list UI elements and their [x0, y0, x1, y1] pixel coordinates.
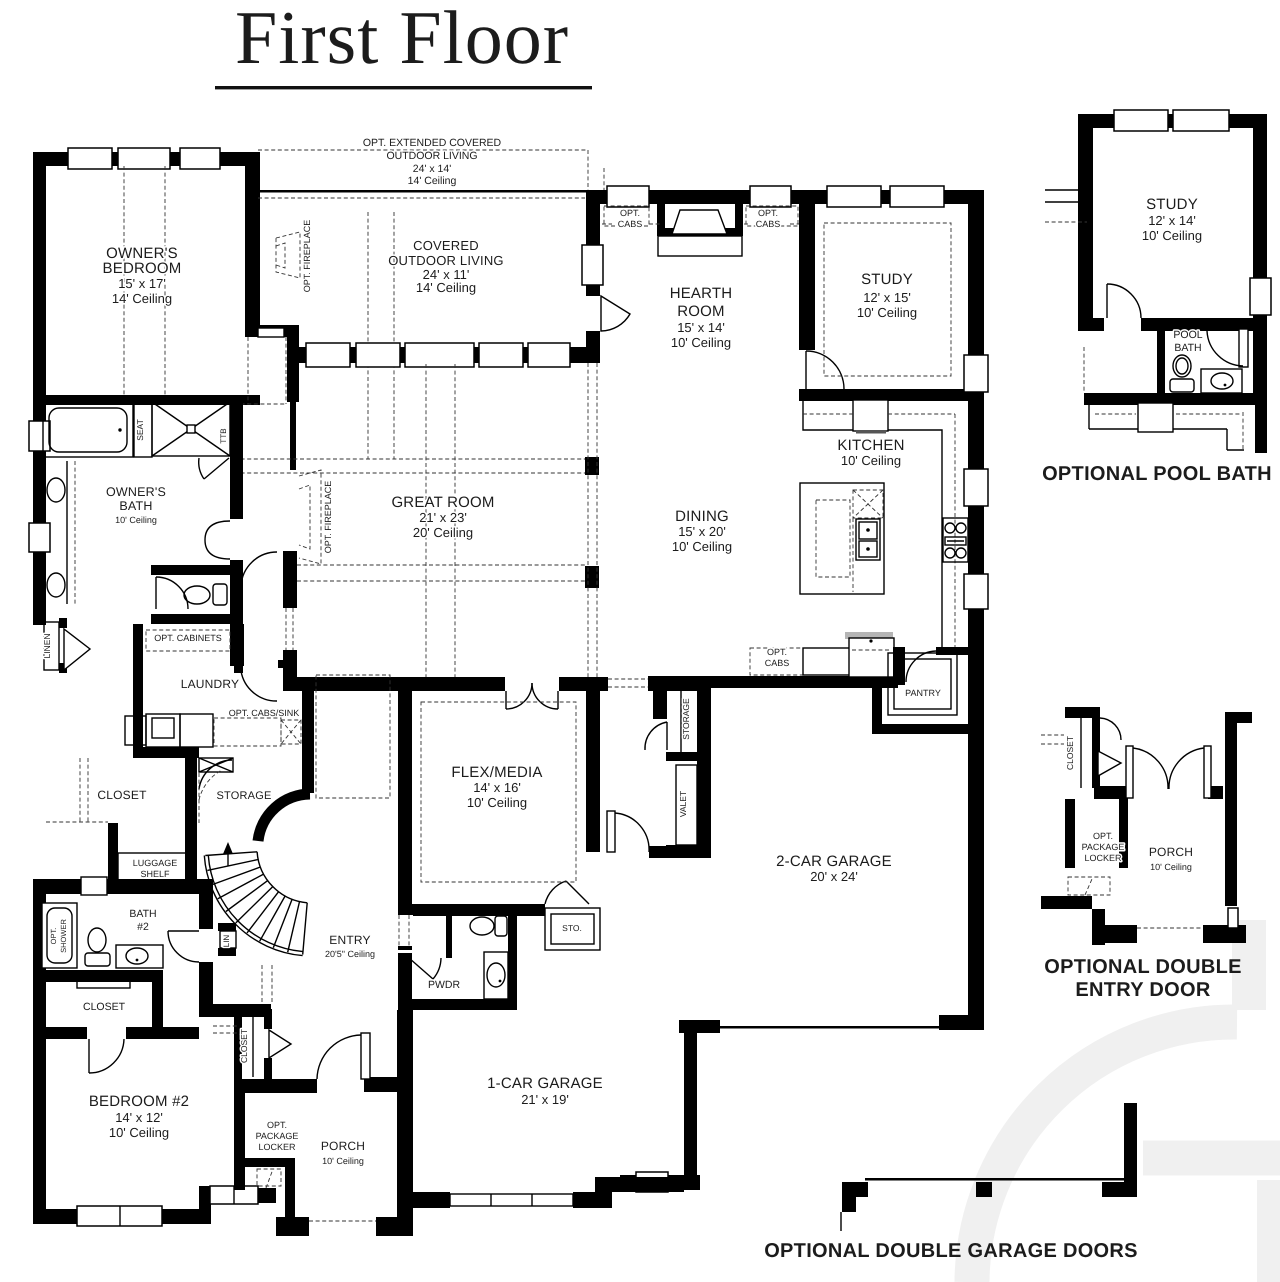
svg-text:OUTDOOR LIVING: OUTDOOR LIVING: [386, 150, 477, 162]
svg-text:OPT.: OPT.: [620, 208, 640, 218]
svg-text:DINING: DINING: [675, 508, 729, 525]
svg-text:STORAGE: STORAGE: [217, 790, 272, 802]
svg-text:BEDROOM #2: BEDROOM #2: [89, 1093, 189, 1110]
svg-text:OPT. EXTENDED COVERED: OPT. EXTENDED COVERED: [363, 137, 502, 149]
svg-text:CABS: CABS: [618, 219, 643, 229]
svg-text:CLOSET: CLOSET: [83, 1001, 126, 1013]
svg-text:LINEN: LINEN: [42, 633, 52, 658]
svg-text:SEAT: SEAT: [135, 419, 145, 441]
svg-text:OPT. FIREPLACE: OPT. FIREPLACE: [302, 220, 312, 293]
svg-text:20' x 24': 20' x 24': [810, 869, 858, 884]
svg-text:PWDR: PWDR: [428, 979, 460, 991]
svg-text:OPT.: OPT.: [1093, 831, 1113, 841]
svg-text:1-CAR GARAGE: 1-CAR GARAGE: [487, 1075, 603, 1092]
svg-text:20'5" Ceiling: 20'5" Ceiling: [325, 949, 375, 959]
svg-text:COVERED: COVERED: [413, 238, 479, 253]
svg-text:LIN: LIN: [222, 935, 231, 948]
svg-text:LOCKER: LOCKER: [1084, 853, 1122, 863]
svg-text:OPT.: OPT.: [49, 928, 58, 945]
svg-text:10' Ceiling: 10' Ceiling: [857, 305, 917, 320]
svg-text:First Floor: First Floor: [235, 0, 569, 80]
svg-text:21' x 19': 21' x 19': [521, 1092, 569, 1107]
svg-text:10' Ceiling: 10' Ceiling: [671, 335, 731, 350]
svg-text:CABS: CABS: [765, 658, 790, 668]
svg-text:14' Ceiling: 14' Ceiling: [416, 280, 476, 295]
svg-text:BATH: BATH: [1174, 342, 1201, 354]
svg-text:STUDY: STUDY: [861, 271, 913, 288]
svg-text:LOCKER: LOCKER: [258, 1142, 296, 1152]
svg-text:BEDROOM: BEDROOM: [103, 260, 182, 277]
svg-text:FLEX/MEDIA: FLEX/MEDIA: [451, 764, 542, 781]
svg-text:LAUNDRY: LAUNDRY: [181, 677, 240, 691]
svg-text:STUDY: STUDY: [1146, 196, 1198, 213]
svg-text:SHELF: SHELF: [140, 869, 170, 879]
svg-text:14' x 12': 14' x 12': [115, 1110, 163, 1125]
svg-text:OPTIONAL POOL BATH: OPTIONAL POOL BATH: [1042, 463, 1272, 485]
svg-text:OPTIONAL DOUBLE: OPTIONAL DOUBLE: [1044, 956, 1241, 978]
svg-text:14' Ceiling: 14' Ceiling: [112, 291, 172, 306]
svg-text:OPT. FIREPLACE: OPT. FIREPLACE: [323, 481, 333, 554]
svg-text:VALET: VALET: [678, 791, 688, 817]
svg-text:ENTRY DOOR: ENTRY DOOR: [1075, 979, 1210, 1001]
svg-text:PACKAGE: PACKAGE: [1082, 842, 1125, 852]
svg-text:20' Ceiling: 20' Ceiling: [413, 525, 473, 540]
svg-text:HEARTH: HEARTH: [670, 285, 733, 302]
svg-text:TTB: TTB: [219, 428, 228, 443]
svg-text:PORCH: PORCH: [321, 1139, 365, 1153]
svg-text:2-CAR GARAGE: 2-CAR GARAGE: [776, 853, 892, 870]
svg-text:STO.: STO.: [562, 923, 582, 933]
svg-text:14' x 16': 14' x 16': [473, 780, 521, 795]
svg-text:12' x 15': 12' x 15': [863, 290, 911, 305]
svg-text:#2: #2: [137, 921, 149, 933]
svg-text:10' Ceiling: 10' Ceiling: [1142, 228, 1202, 243]
svg-text:KITCHEN: KITCHEN: [837, 437, 904, 454]
svg-text:ENTRY: ENTRY: [329, 933, 370, 947]
svg-text:CLOSET: CLOSET: [1065, 736, 1075, 770]
svg-text:OWNER'S: OWNER'S: [106, 485, 166, 499]
svg-text:PACKAGE: PACKAGE: [256, 1131, 299, 1141]
svg-text:LUGGAGE: LUGGAGE: [133, 858, 178, 868]
svg-text:OUTDOOR LIVING: OUTDOOR LIVING: [388, 253, 503, 268]
svg-text:OPT.: OPT.: [758, 208, 778, 218]
svg-text:15' x 14': 15' x 14': [677, 320, 725, 335]
svg-text:10' Ceiling: 10' Ceiling: [841, 453, 901, 468]
svg-text:OPT. CABINETS: OPT. CABINETS: [154, 633, 222, 643]
svg-text:15' x 20': 15' x 20': [678, 524, 726, 539]
svg-text:CLOSET: CLOSET: [239, 1029, 249, 1063]
svg-text:10' Ceiling: 10' Ceiling: [672, 539, 732, 554]
svg-text:OPT.: OPT.: [267, 1120, 287, 1130]
svg-text:OPTIONAL DOUBLE GARAGE DOORS: OPTIONAL DOUBLE GARAGE DOORS: [764, 1240, 1138, 1262]
svg-text:ROOM: ROOM: [677, 303, 724, 320]
svg-text:CLOSET: CLOSET: [97, 788, 147, 802]
svg-text:10' Ceiling: 10' Ceiling: [322, 1156, 364, 1166]
svg-text:10' Ceiling: 10' Ceiling: [467, 795, 527, 810]
svg-text:STORAGE: STORAGE: [681, 698, 691, 740]
svg-text:POOL: POOL: [1173, 329, 1202, 341]
svg-text:SHOWER: SHOWER: [59, 919, 68, 953]
svg-text:OPT.: OPT.: [767, 647, 787, 657]
svg-text:21' x 23': 21' x 23': [419, 510, 467, 525]
svg-text:15' x 17': 15' x 17': [118, 276, 166, 291]
svg-text:10' Ceiling: 10' Ceiling: [115, 515, 157, 525]
svg-text:12' x 14': 12' x 14': [1148, 213, 1196, 228]
svg-text:CABS: CABS: [756, 219, 781, 229]
svg-text:BATH: BATH: [129, 908, 156, 920]
svg-text:GREAT ROOM: GREAT ROOM: [391, 494, 494, 511]
svg-text:10' Ceiling: 10' Ceiling: [1150, 862, 1192, 872]
svg-text:PANTRY: PANTRY: [905, 688, 941, 698]
svg-text:OPT. CABS/SINK: OPT. CABS/SINK: [229, 708, 300, 718]
svg-text:14' Ceiling: 14' Ceiling: [408, 175, 457, 187]
svg-text:24' x 14': 24' x 14': [413, 163, 451, 175]
svg-text:BATH: BATH: [119, 499, 152, 513]
svg-text:10' Ceiling: 10' Ceiling: [109, 1125, 169, 1140]
svg-text:PORCH: PORCH: [1149, 845, 1193, 859]
